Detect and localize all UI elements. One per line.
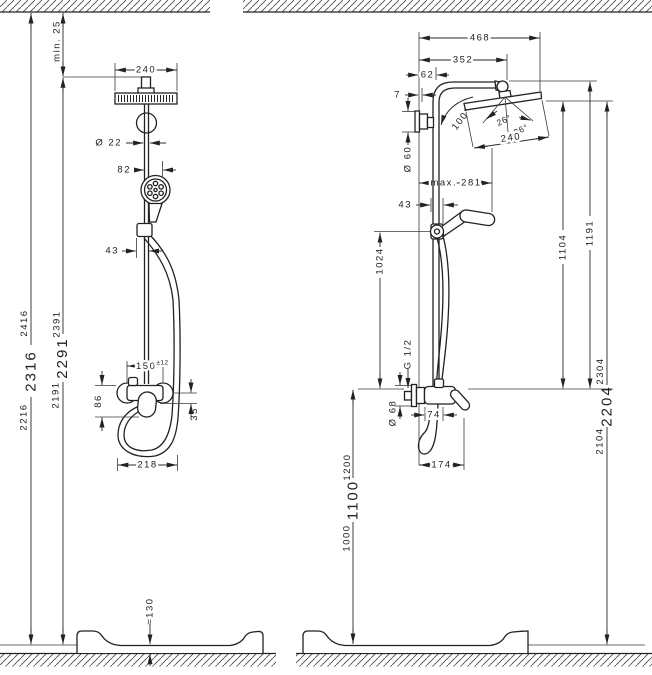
dim-height-a-mid: 2316 xyxy=(23,350,40,391)
right-mixer-escutcheon xyxy=(412,385,417,407)
right-shower-product: 26° 26° 240 xyxy=(405,81,550,454)
dim-total-reach: 468 xyxy=(470,33,490,44)
dim-mixer-height-mid: 1100 xyxy=(345,480,362,520)
shower-dimension-drawing: 2416 2316 2216 min. 25 2391 2291 2191 xyxy=(0,0,652,675)
dim-total-height-mid: 2204 xyxy=(599,385,616,426)
left-handshower xyxy=(141,176,170,205)
dim-thread: G 1/2 xyxy=(403,339,414,370)
supply-connection xyxy=(405,392,412,401)
dim-height-a-low: 2216 xyxy=(19,403,30,430)
dim-plate-offset: 7 xyxy=(394,90,401,101)
dim-mixer-width: 74 xyxy=(427,410,441,421)
dim-hose-loop-width-right: 174 xyxy=(431,460,451,471)
holder-pivot xyxy=(431,225,444,238)
dim-min-ceiling-clearance: min. 25 xyxy=(52,20,63,62)
dim-handshower-reach: max. 281 xyxy=(430,178,481,189)
dim-arm-reach: 352 xyxy=(453,55,473,66)
left-height-dimensions: 2416 2316 2216 min. 25 2391 2291 2191 xyxy=(0,13,141,645)
left-pipe-union xyxy=(137,113,157,133)
right-lower-dimensions: G 1/2 Ø 68 74 174 xyxy=(388,339,465,471)
right-shower-hose xyxy=(438,236,449,403)
dim-holder-height: 1024 xyxy=(375,247,386,274)
ceiling-left xyxy=(0,0,210,12)
dim-tilt-angle-1: 26° xyxy=(495,112,513,128)
dim-height-b-low: 2191 xyxy=(51,381,62,408)
dim-head-height-above-mixer: 1104 xyxy=(558,234,569,260)
dim-height-b-mid: 2291 xyxy=(54,337,71,378)
floor-left xyxy=(0,654,276,667)
left-shower-product xyxy=(115,77,180,457)
dim-total-height-low: 2104 xyxy=(595,427,606,454)
dim-mixer-height: 86 xyxy=(93,394,104,408)
dim-wall-to-pipe: 62 xyxy=(421,70,435,81)
dim-mixer-height-high: 1200 xyxy=(342,453,353,480)
wall-plate xyxy=(415,111,420,132)
dim-arm-height-above-mixer: 1191 xyxy=(585,220,596,246)
dim-hose-loop-width-left: 218 xyxy=(137,460,157,471)
dim-height-a-high: 2416 xyxy=(19,309,30,336)
dim-outlet-offset: 35 xyxy=(189,407,200,421)
left-mixer-lever xyxy=(137,391,158,418)
floor-right xyxy=(296,654,652,667)
dim-plate-diameter: Ø 60 xyxy=(403,146,414,173)
dim-head-length: 240 xyxy=(500,131,522,145)
dim-mixer-height-low: 1000 xyxy=(342,524,353,551)
left-handshower-handle xyxy=(149,204,162,223)
dim-total-height-high: 2304 xyxy=(595,357,606,384)
right-handshower xyxy=(459,209,495,226)
dim-holder-offset-right: 43 xyxy=(398,200,412,211)
dim-connection-spacing: 150±12 xyxy=(136,359,169,372)
ceiling-right xyxy=(243,0,652,12)
dim-handshower-offset: 82 xyxy=(117,165,131,176)
dim-tray-height: ≈130 xyxy=(145,597,156,624)
dim-holder-offset-left: 43 xyxy=(105,246,119,257)
right-height-dimensions: 1024 1200 1100 1000 1104 1191 2304 2204 … xyxy=(342,32,646,645)
shower-tray-right xyxy=(303,631,528,653)
dim-head-width: 240 xyxy=(136,65,156,76)
dim-pipe-diameter: Ø 22 xyxy=(95,138,122,149)
technical-drawing-page: 2416 2316 2216 min. 25 2391 2291 2191 xyxy=(0,0,652,675)
dim-height-b-high: 2391 xyxy=(52,310,63,337)
dim-escutcheon-diameter: Ø 68 xyxy=(388,400,399,427)
left-slider-holder xyxy=(137,224,152,237)
